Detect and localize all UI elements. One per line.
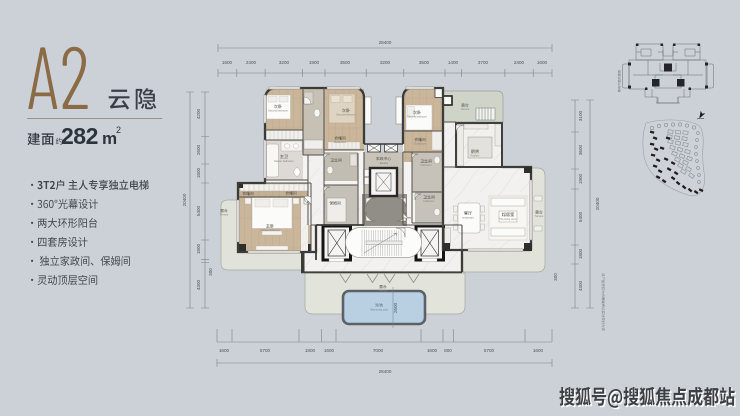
svg-text:Terrace: Terrace [220, 213, 229, 217]
svg-text:20400: 20400 [595, 197, 600, 210]
svg-text:3600: 3600 [578, 144, 583, 155]
svg-text:restaurant: restaurant [462, 216, 474, 220]
svg-text:4300: 4300 [578, 280, 583, 291]
svg-text:1800: 1800 [196, 167, 201, 178]
svg-text:bathroom: bathroom [424, 199, 435, 203]
svg-text:1600: 1600 [324, 348, 335, 353]
svg-text:800: 800 [444, 348, 452, 353]
svg-text:1600: 1600 [427, 348, 438, 353]
svg-text:5400: 5400 [578, 211, 583, 222]
svg-text:282: 282 [61, 123, 98, 149]
svg-text:Terrace: Terrace [461, 107, 470, 111]
svg-text:Second bedroom: Second bedroom [407, 115, 427, 119]
svg-text:3200: 3200 [279, 60, 290, 65]
svg-text:1900: 1900 [309, 60, 320, 65]
svg-text:2400: 2400 [514, 60, 525, 65]
svg-text:1800: 1800 [578, 248, 583, 259]
svg-text:28400: 28400 [379, 369, 392, 374]
svg-text:m: m [102, 129, 117, 148]
svg-text:Master bedroom: Master bedroom [261, 228, 280, 232]
svg-text:28400: 28400 [379, 40, 392, 45]
svg-text:1600: 1600 [222, 60, 233, 65]
svg-text:3200: 3200 [380, 60, 391, 65]
svg-text:1600: 1600 [533, 348, 544, 353]
svg-text:4200: 4200 [196, 108, 201, 119]
svg-text:Swimming pool: Swimming pool [370, 308, 388, 312]
svg-text:1600: 1600 [537, 60, 548, 65]
svg-text:1400: 1400 [448, 60, 459, 65]
svg-text:Master bathroom: Master bathroom [274, 159, 294, 163]
svg-text:1800: 1800 [305, 348, 316, 353]
svg-text:1900: 1900 [578, 173, 583, 184]
svg-text:Terrace: Terrace [379, 289, 388, 293]
svg-text:laundry: laundry [380, 161, 389, 165]
svg-text:Cloakroom: Cloakroom [334, 140, 347, 144]
svg-text:2600: 2600 [393, 302, 398, 313]
svg-text:5700: 5700 [260, 348, 271, 353]
svg-text:Second bedroom: Second bedroom [268, 109, 288, 113]
svg-text:7000: 7000 [373, 348, 384, 353]
svg-text:300: 300 [553, 273, 558, 281]
svg-text:5700: 5700 [484, 348, 495, 353]
svg-text:2: 2 [116, 125, 121, 135]
svg-text:Cloakroom: Cloakroom [414, 142, 427, 146]
svg-text:5400: 5400 [196, 205, 201, 216]
svg-text:3700: 3700 [478, 60, 489, 65]
svg-text:300: 300 [208, 268, 213, 276]
svg-text:1800: 1800 [196, 243, 201, 254]
svg-text:Terrace: Terrace [535, 214, 544, 218]
svg-text:Kitchen: Kitchen [471, 154, 480, 158]
svg-text:1600: 1600 [219, 348, 230, 353]
svg-text:2600: 2600 [196, 144, 201, 155]
svg-text:3500: 3500 [340, 60, 351, 65]
svg-text:4300: 4300 [196, 279, 201, 290]
svg-text:3500: 3500 [419, 60, 430, 65]
svg-text:20400: 20400 [182, 193, 187, 206]
svg-text:Second bedroom: Second bedroom [336, 113, 356, 117]
svg-text:The living room: The living room [499, 217, 517, 221]
svg-text:2400: 2400 [246, 60, 257, 65]
svg-text:bathroom: bathroom [421, 163, 432, 167]
svg-text:3100: 3100 [578, 110, 583, 121]
